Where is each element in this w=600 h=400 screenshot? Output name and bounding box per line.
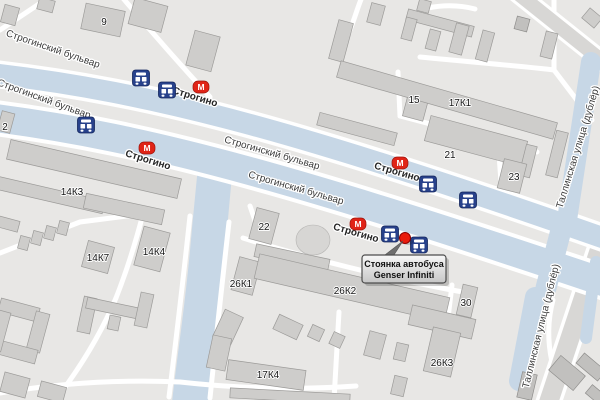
callout-line2: Genser Infiniti <box>374 270 435 280</box>
building-label: 15 <box>408 95 420 106</box>
building-label: 26К3 <box>431 358 454 369</box>
map-canvas[interactable]: М <box>0 0 600 400</box>
building <box>514 16 530 32</box>
building-label: 17К1 <box>449 98 472 109</box>
building-label: 26К1 <box>230 279 253 290</box>
metro-icon[interactable] <box>350 218 366 230</box>
building <box>107 315 121 331</box>
building-label: 2 <box>2 122 8 133</box>
building-label: 14К3 <box>61 187 84 198</box>
building-label: 14К7 <box>87 253 110 264</box>
bus-stop-icon[interactable] <box>78 117 95 133</box>
callout-line1: Стоянка автобуса <box>364 259 444 269</box>
map-container[interactable]: М <box>0 0 600 400</box>
building-label: 26К2 <box>334 286 357 297</box>
bus-stop-icon[interactable] <box>420 176 437 192</box>
round-structure <box>296 225 330 255</box>
bus-stop-icon[interactable] <box>133 70 150 86</box>
building-label: 21 <box>444 150 456 161</box>
building-label: 23 <box>508 172 520 183</box>
bus-stop-icon[interactable] <box>411 237 428 253</box>
bus-stop-icon[interactable] <box>159 82 176 98</box>
building-label: 9 <box>101 17 107 28</box>
building-label: 14К4 <box>143 247 166 258</box>
metro-icon[interactable] <box>193 81 209 93</box>
bus-stop-icon[interactable] <box>460 192 477 208</box>
marker-dot <box>400 233 411 244</box>
metro-icon[interactable] <box>392 157 408 169</box>
bus-stop-icon[interactable] <box>382 226 399 242</box>
building-label: 30 <box>460 298 472 309</box>
building-label: 17К4 <box>257 370 280 381</box>
building-label: 22 <box>258 222 270 233</box>
metro-icon[interactable] <box>139 142 155 154</box>
